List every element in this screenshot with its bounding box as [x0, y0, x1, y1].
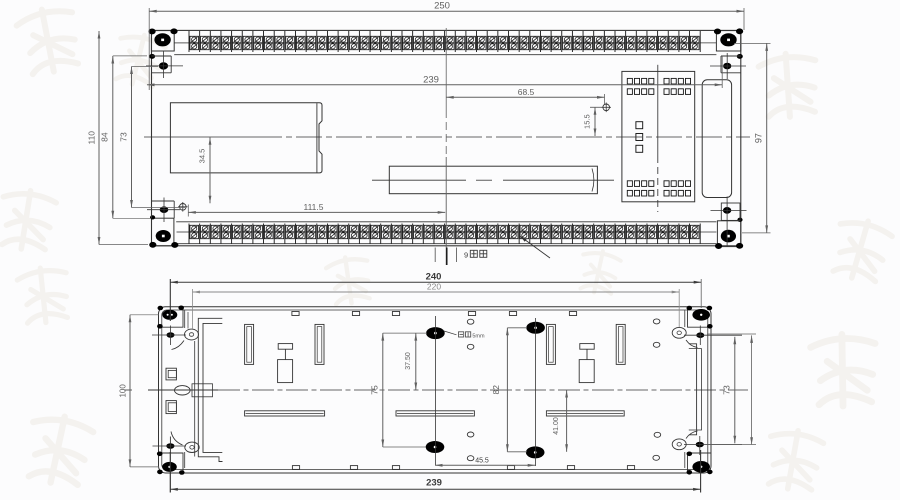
svg-text:5mm: 5mm	[472, 333, 485, 339]
svg-text:73: 73	[722, 385, 732, 395]
svg-text:239: 239	[423, 74, 439, 85]
svg-text:15.5: 15.5	[583, 114, 592, 129]
svg-text:68.5: 68.5	[518, 87, 535, 97]
svg-text:250: 250	[434, 1, 450, 12]
svg-text:9: 9	[464, 251, 468, 260]
svg-text:82: 82	[491, 385, 501, 395]
svg-text:100: 100	[119, 384, 128, 398]
svg-text:220: 220	[427, 282, 441, 292]
svg-text:41.00: 41.00	[553, 417, 560, 435]
svg-text:84: 84	[100, 132, 110, 142]
svg-text:110: 110	[87, 131, 97, 145]
svg-text:111.5: 111.5	[303, 202, 323, 212]
svg-text:45.5: 45.5	[475, 457, 489, 464]
svg-text:75: 75	[370, 385, 380, 395]
svg-text:239: 239	[426, 478, 442, 489]
svg-text:37.50: 37.50	[405, 352, 412, 370]
svg-text:73: 73	[119, 132, 129, 142]
svg-text:97: 97	[754, 133, 764, 143]
svg-text:34.5: 34.5	[198, 149, 207, 164]
